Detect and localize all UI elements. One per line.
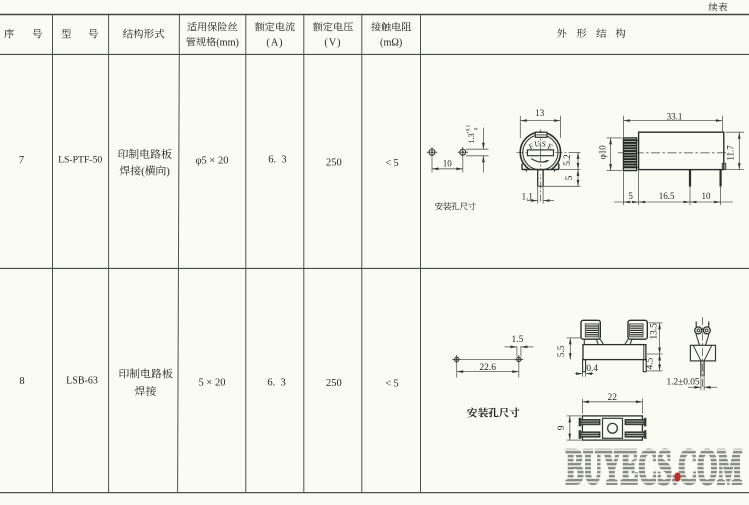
svg-text:16.5: 16.5 [659, 191, 675, 201]
svg-text:10: 10 [702, 191, 712, 201]
svg-text:8: 8 [19, 376, 24, 387]
svg-text:1.1: 1.1 [522, 191, 533, 201]
svg-text:33.1: 33.1 [667, 111, 683, 121]
svg-text:22.6: 22.6 [479, 363, 496, 373]
svg-text:7: 7 [19, 155, 24, 166]
svg-text:22: 22 [608, 393, 618, 403]
svg-text:φ5 × 20: φ5 × 20 [196, 156, 229, 167]
svg-text:250: 250 [326, 158, 342, 169]
svg-text:印制电路板: 印制电路板 [119, 366, 173, 381]
svg-text:序: 序 [3, 25, 14, 40]
svg-text:5: 5 [628, 191, 633, 201]
svg-text:印制电路板: 印制电路板 [118, 147, 172, 162]
svg-text:5.5: 5.5 [557, 345, 567, 357]
svg-text:< 5: < 5 [385, 158, 398, 169]
svg-text:续表: 续表 [707, 0, 728, 14]
svg-text:结: 结 [596, 25, 607, 40]
svg-text:10: 10 [443, 158, 453, 168]
svg-text:额定电流: 额定电流 [255, 18, 296, 33]
svg-text:外: 外 [557, 25, 567, 40]
svg-text:号: 号 [32, 25, 42, 40]
svg-text:焊接: 焊接 [135, 384, 157, 399]
svg-text:号: 号 [88, 25, 98, 40]
svg-text:11.7: 11.7 [726, 145, 736, 161]
svg-text:1.5: 1.5 [511, 335, 523, 345]
svg-text:形: 形 [576, 25, 587, 40]
svg-text:5 × 20: 5 × 20 [199, 378, 226, 389]
svg-text:结构形式: 结构形式 [123, 26, 165, 41]
svg-text:LSB-63: LSB-63 [66, 376, 98, 387]
svg-text:6. 3: 6. 3 [267, 378, 285, 389]
svg-text:(A): (A) [266, 37, 283, 48]
svg-text:额定电压: 额定电压 [313, 18, 354, 33]
svg-text:+0.1: +0.1 [465, 124, 471, 134]
svg-text:型: 型 [61, 25, 72, 40]
svg-text:9: 9 [557, 425, 567, 430]
svg-text:LS-PTF-50: LS-PTF-50 [58, 154, 102, 165]
svg-text:0: 0 [473, 127, 479, 130]
svg-text:适用保险丝: 适用保险丝 [187, 18, 238, 33]
svg-text:5.2: 5.2 [563, 154, 573, 166]
svg-text:(mΩ): (mΩ) [380, 37, 402, 48]
svg-text:< 5: < 5 [385, 379, 398, 390]
svg-text:4.5: 4.5 [646, 357, 656, 369]
svg-text:13.5: 13.5 [649, 323, 659, 340]
svg-text:安装孔尺寸: 安装孔尺寸 [467, 405, 520, 420]
svg-text:构: 构 [615, 25, 625, 40]
svg-text:焊接(横向): 焊接(横向) [120, 164, 171, 179]
svg-text:250: 250 [326, 378, 342, 389]
svg-text:0.4: 0.4 [586, 364, 598, 374]
svg-text:安装孔尺寸: 安装孔尺寸 [434, 201, 476, 213]
svg-text:接触电阻: 接触电阻 [371, 18, 413, 33]
svg-text:(V): (V) [324, 37, 341, 48]
svg-text:13: 13 [535, 108, 545, 118]
svg-text:φ10: φ10 [598, 145, 608, 160]
svg-text:1.2±0.05: 1.2±0.05 [667, 377, 700, 387]
svg-text:5: 5 [565, 175, 575, 180]
svg-text:管规格(mm): 管规格(mm) [186, 33, 239, 48]
svg-text:6. 3: 6. 3 [268, 155, 286, 166]
